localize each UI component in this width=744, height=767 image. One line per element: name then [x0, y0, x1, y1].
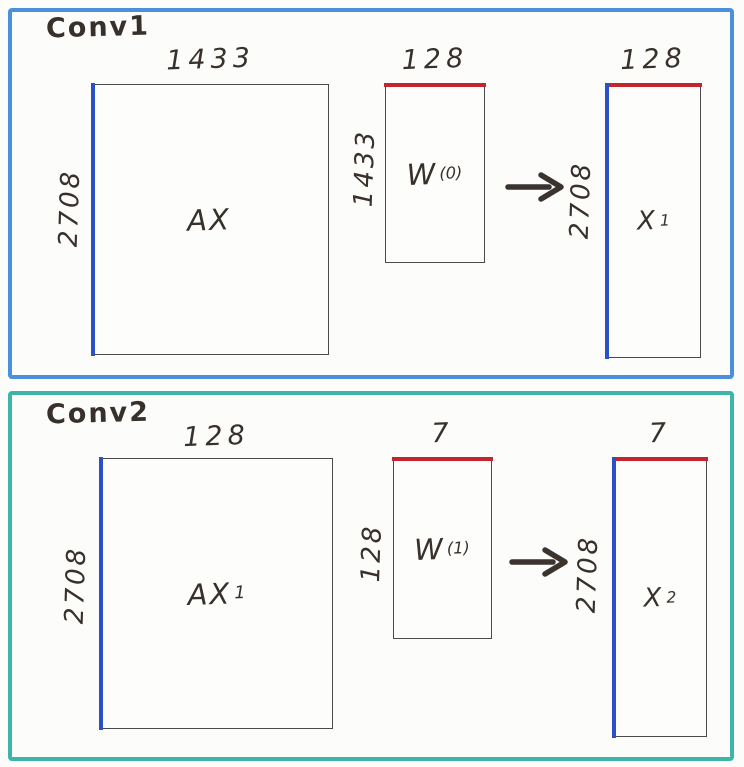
ax-row-edge — [91, 83, 95, 356]
ax1-row-edge — [99, 457, 103, 730]
w1-matrix-box: W(1) — [393, 458, 492, 639]
x1-col-edge — [605, 83, 702, 87]
conv1-arrow-icon — [504, 170, 568, 204]
x1-matrix-label: X1 — [602, 83, 704, 358]
x2-matrix-box: X2 — [613, 458, 707, 737]
x2-rows-dim: 2708 — [571, 513, 607, 634]
w1-rows-dim: 128 — [355, 492, 391, 613]
x2-row-edge — [612, 457, 616, 738]
ax-matrix-box: AX — [92, 84, 329, 355]
w0-col-edge — [384, 83, 486, 87]
w0-rows-dim: 1433 — [348, 107, 384, 228]
w0-cols-dim: 128 — [384, 42, 485, 77]
gcn-shapes-diagram: Conv1 1433 2708 AX 128 1433 W(0) 128 270… — [0, 0, 744, 767]
x1-matrix-box: X1 — [606, 84, 701, 358]
conv2-arrow-icon — [508, 545, 572, 579]
w1-col-edge — [392, 457, 493, 461]
ax1-rows-dim: 2708 — [59, 524, 95, 645]
w1-cols-dim: 7 — [392, 416, 492, 451]
x1-cols-dim: 128 — [605, 42, 701, 77]
ax1-matrix-box: AX1 — [100, 458, 333, 729]
x1-rows-dim: 2708 — [564, 139, 600, 260]
ax-rows-dim: 2708 — [53, 147, 89, 268]
x2-cols-dim: 7 — [612, 416, 707, 451]
ax-matrix-label: AX — [88, 81, 332, 358]
x2-matrix-label: X2 — [609, 457, 711, 737]
x1-row-edge — [605, 83, 609, 359]
conv1-title: Conv1 — [46, 11, 151, 45]
x2-col-edge — [612, 457, 708, 461]
w0-matrix-label: W(0) — [383, 83, 487, 263]
w0-matrix-box: W(0) — [385, 84, 485, 263]
w1-matrix-label: W(1) — [391, 457, 494, 639]
ax1-matrix-label: AX1 — [96, 455, 336, 732]
